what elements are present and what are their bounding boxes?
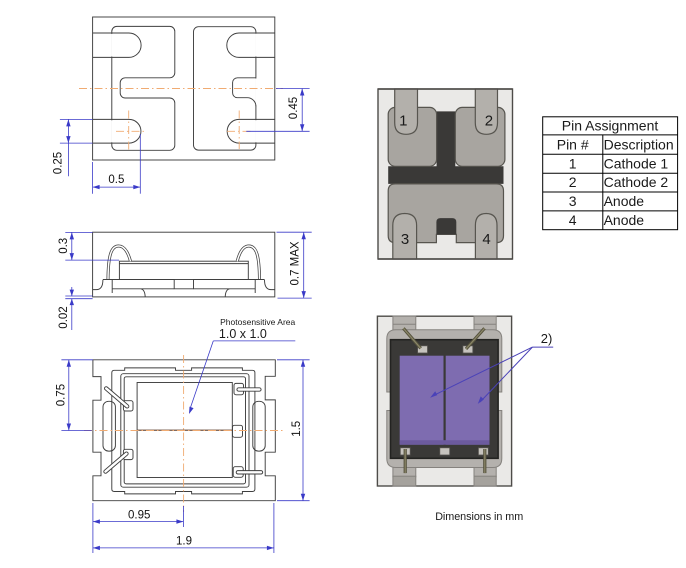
svg-text:4: 4 <box>482 231 490 248</box>
svg-text:4: 4 <box>569 212 577 228</box>
svg-text:Anode: Anode <box>604 212 645 228</box>
svg-text:0.25: 0.25 <box>52 152 64 174</box>
svg-text:0.02: 0.02 <box>58 306 70 328</box>
svg-text:0.3: 0.3 <box>58 238 70 254</box>
svg-text:Photosensitive Area: Photosensitive Area <box>220 317 295 327</box>
svg-text:1.9: 1.9 <box>176 536 192 548</box>
svg-text:3: 3 <box>569 193 577 209</box>
svg-text:0.95: 0.95 <box>128 509 150 521</box>
svg-text:0.75: 0.75 <box>56 384 68 406</box>
svg-text:1.5: 1.5 <box>291 421 303 437</box>
svg-text:Cathode 1: Cathode 1 <box>604 155 669 171</box>
svg-text:1: 1 <box>569 155 577 171</box>
svg-text:Dimensions in mm: Dimensions in mm <box>435 511 523 523</box>
svg-text:Description: Description <box>604 136 674 152</box>
svg-text:1: 1 <box>399 113 407 130</box>
svg-text:Pin #: Pin # <box>557 136 589 152</box>
svg-text:Anode: Anode <box>604 193 645 209</box>
svg-text:3: 3 <box>401 231 409 248</box>
svg-text:0.7 MAX: 0.7 MAX <box>289 241 301 285</box>
svg-text:1.0 x 1.0: 1.0 x 1.0 <box>219 327 267 341</box>
svg-text:2: 2 <box>569 174 577 190</box>
svg-text:2: 2 <box>485 113 493 130</box>
svg-text:2): 2) <box>541 331 553 346</box>
svg-text:0.45: 0.45 <box>288 97 300 119</box>
svg-text:Pin Assignment: Pin Assignment <box>562 118 659 134</box>
svg-text:0.5: 0.5 <box>108 174 124 186</box>
svg-text:Cathode 2: Cathode 2 <box>604 174 669 190</box>
